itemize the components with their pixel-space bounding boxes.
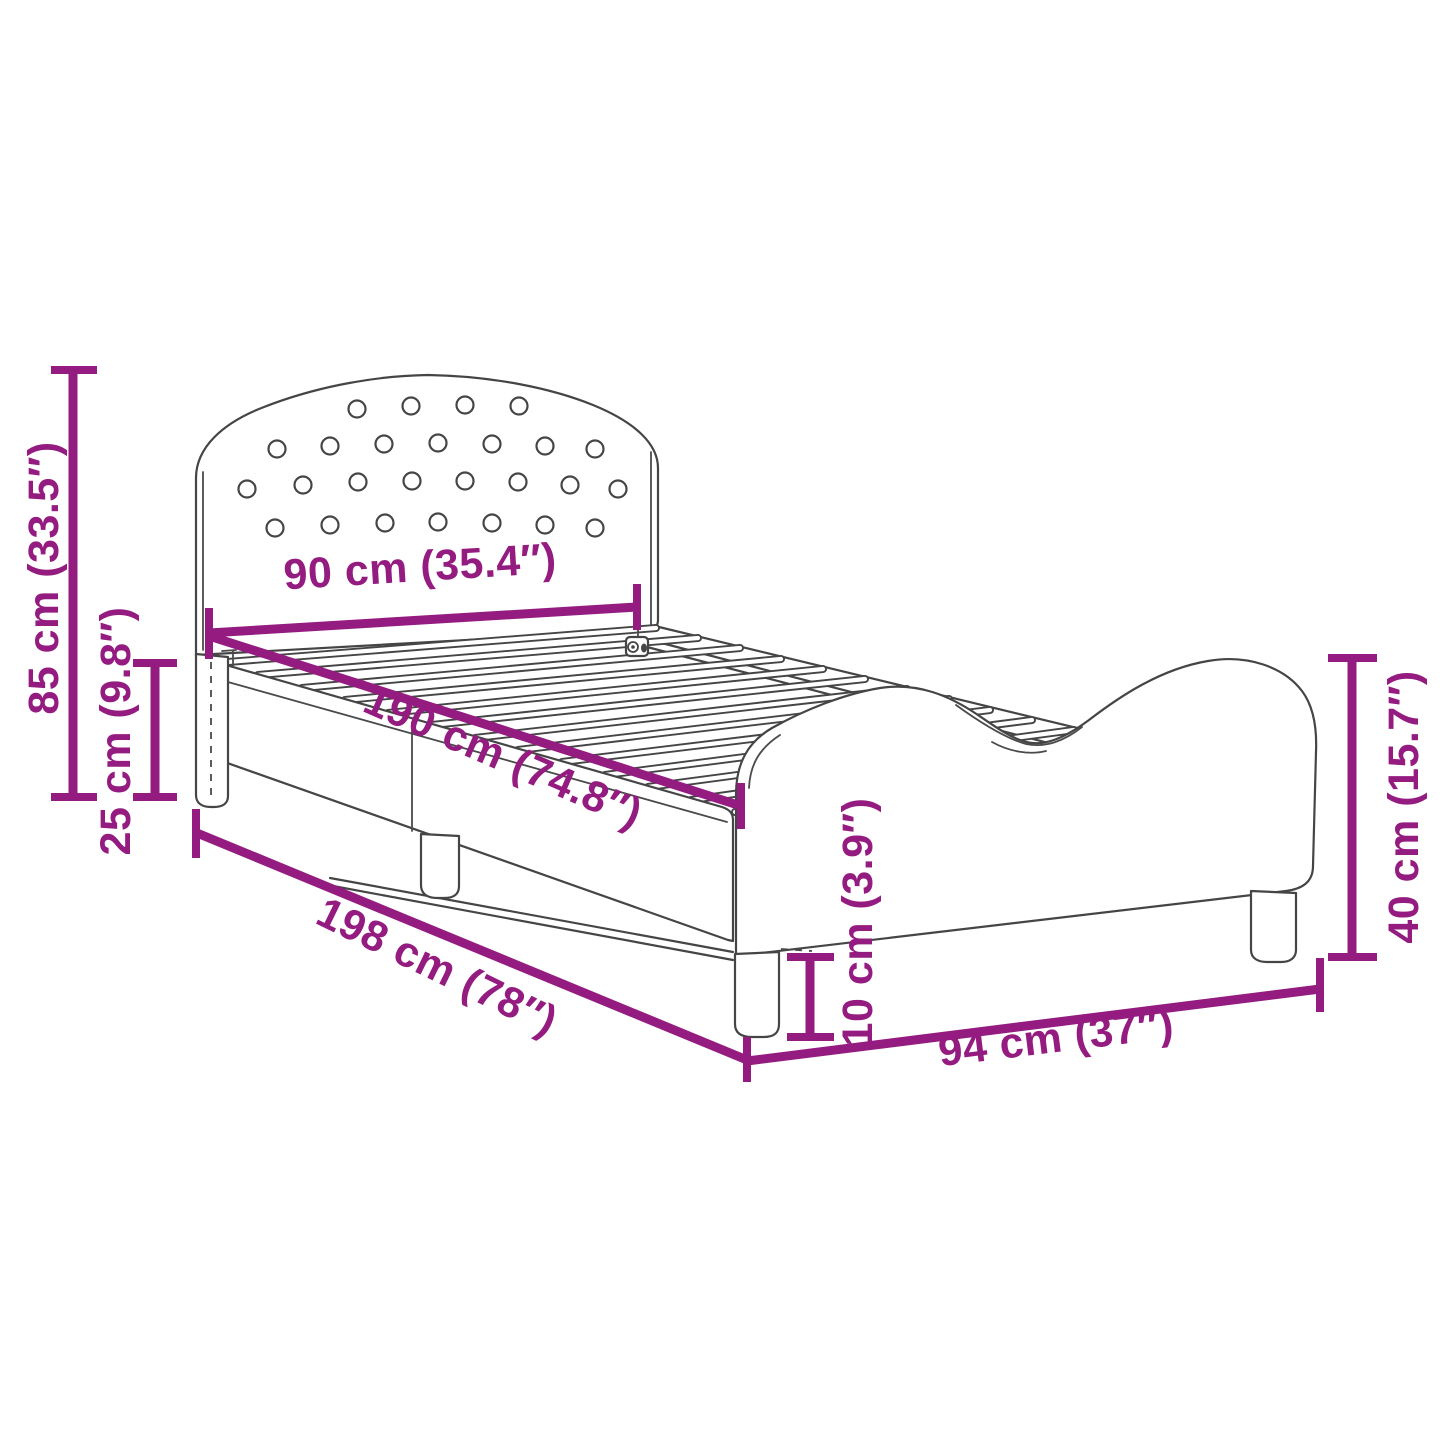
dim-leg-height xyxy=(787,957,834,1037)
dim-rail-top-height-label: 25 cm (9.8″) xyxy=(92,607,140,856)
bed-dimension-diagram-page: 85 cm (33.5″) 25 cm (9.8″) 90 cm (35.4″)… xyxy=(0,0,1445,1445)
middle-leg xyxy=(421,834,459,898)
bed-dimension-diagram: 85 cm (33.5″) 25 cm (9.8″) 90 cm (35.4″)… xyxy=(0,0,1445,1445)
headboard-leg xyxy=(196,654,228,807)
dim-total-width-label: 94 cm (37″) xyxy=(936,1000,1177,1076)
dim-leg-height-label: 10 cm (3.9″) xyxy=(834,798,882,1047)
dim-side-panel-height xyxy=(1328,658,1377,957)
dim-headboard-height-label: 85 cm (33.5″) xyxy=(20,441,68,714)
wavy-side-panel xyxy=(736,659,1316,956)
foot-leg-left xyxy=(735,952,779,1037)
dim-side-panel-height-label: 40 cm (15.7″) xyxy=(1380,670,1428,943)
foot-leg-right xyxy=(1251,891,1296,962)
